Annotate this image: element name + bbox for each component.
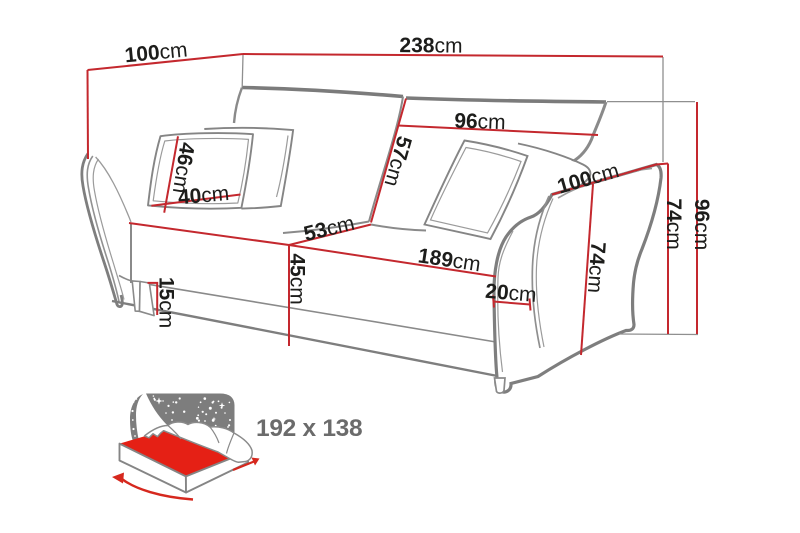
svg-text:74cm: 74cm — [583, 241, 610, 294]
svg-text:96cm: 96cm — [690, 199, 713, 250]
svg-text:40cm: 40cm — [177, 182, 230, 209]
svg-text:192 x 138: 192 x 138 — [256, 415, 362, 442]
svg-text:238cm: 238cm — [399, 34, 462, 58]
svg-text:45cm: 45cm — [286, 253, 309, 304]
svg-text:15cm: 15cm — [155, 277, 178, 328]
svg-text:20cm: 20cm — [484, 280, 537, 307]
svg-text:74cm: 74cm — [662, 198, 685, 249]
svg-text:96cm: 96cm — [454, 109, 506, 134]
